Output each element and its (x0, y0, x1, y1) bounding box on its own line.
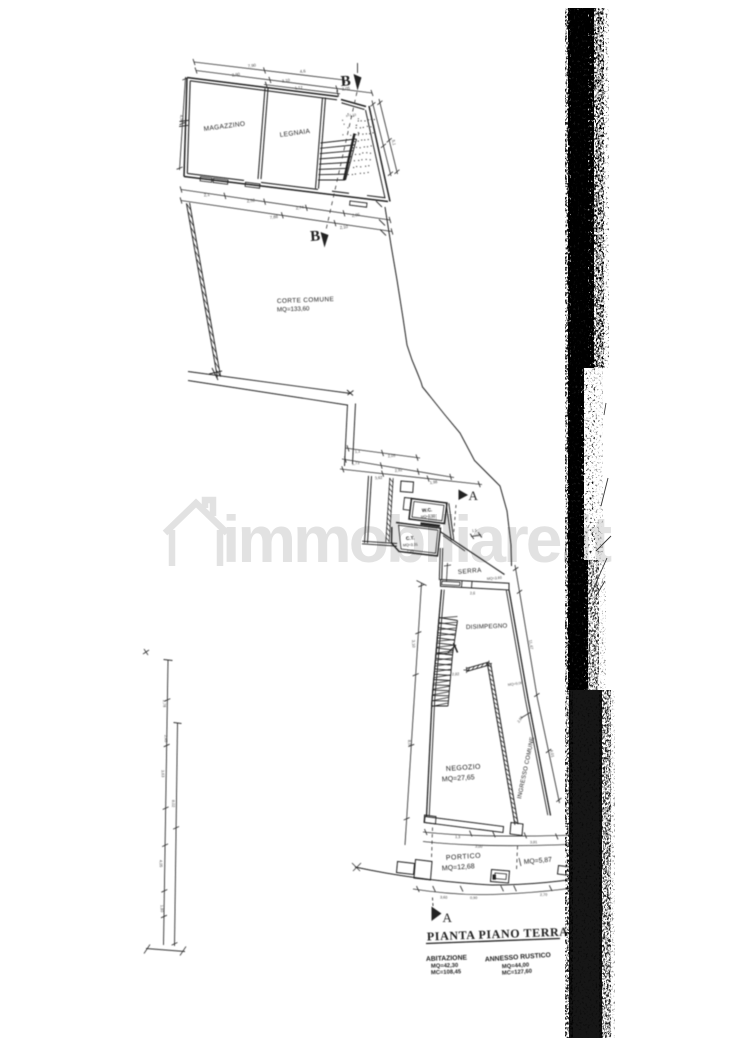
svg-text:3,81: 3,81 (530, 840, 538, 844)
svg-text:4,50: 4,50 (179, 115, 185, 124)
svg-text:2,05: 2,05 (407, 549, 414, 553)
svg-text:immobiliare.it: immobiliare.it (222, 502, 612, 576)
svg-text:2,70: 2,70 (540, 893, 548, 897)
svg-text:3,10: 3,10 (411, 640, 417, 649)
svg-text:1,12: 1,12 (295, 84, 304, 90)
svg-text:MC=108,45: MC=108,45 (431, 969, 462, 976)
svg-text:1,98: 1,98 (430, 479, 438, 485)
svg-text:3,60: 3,60 (440, 896, 447, 900)
svg-text:DISIMPEGNO: DISIMPEGNO (466, 623, 508, 631)
svg-text:B: B (340, 73, 351, 90)
svg-text:2,92: 2,92 (394, 467, 402, 473)
svg-text:2,45: 2,45 (164, 735, 168, 743)
svg-text:3,63: 3,63 (161, 770, 165, 778)
svg-text:MQ=133,60: MQ=133,60 (277, 305, 310, 313)
svg-text:2,82: 2,82 (452, 672, 460, 676)
svg-text:3,10: 3,10 (282, 77, 291, 83)
svg-text:1,5: 1,5 (472, 528, 477, 533)
svg-text:C.T.: C.T. (406, 535, 415, 542)
svg-text:1,3: 1,3 (455, 835, 460, 839)
svg-text:B: B (310, 228, 321, 245)
svg-text:2,05: 2,05 (388, 453, 396, 459)
svg-text:A: A (469, 488, 479, 503)
svg-text:3,62: 3,62 (375, 475, 383, 481)
svg-text:8,02: 8,02 (171, 800, 175, 808)
svg-text:4,05: 4,05 (159, 860, 163, 868)
svg-text:2,6: 2,6 (470, 591, 475, 595)
svg-text:1,80: 1,80 (160, 905, 164, 913)
svg-text:2,78: 2,78 (162, 700, 166, 708)
svg-text:0,90: 0,90 (470, 896, 477, 900)
svg-text:1,1: 1,1 (355, 448, 361, 454)
svg-text:7,90: 7,90 (248, 62, 257, 68)
svg-text:3,00: 3,00 (475, 845, 483, 849)
svg-text:1,73: 1,73 (351, 460, 359, 466)
svg-text:W.C.: W.C. (422, 507, 433, 514)
svg-text:2,90: 2,90 (232, 71, 241, 77)
svg-text:ABITAZIONE: ABITAZIONE (426, 955, 468, 963)
svg-text:A: A (443, 910, 453, 925)
